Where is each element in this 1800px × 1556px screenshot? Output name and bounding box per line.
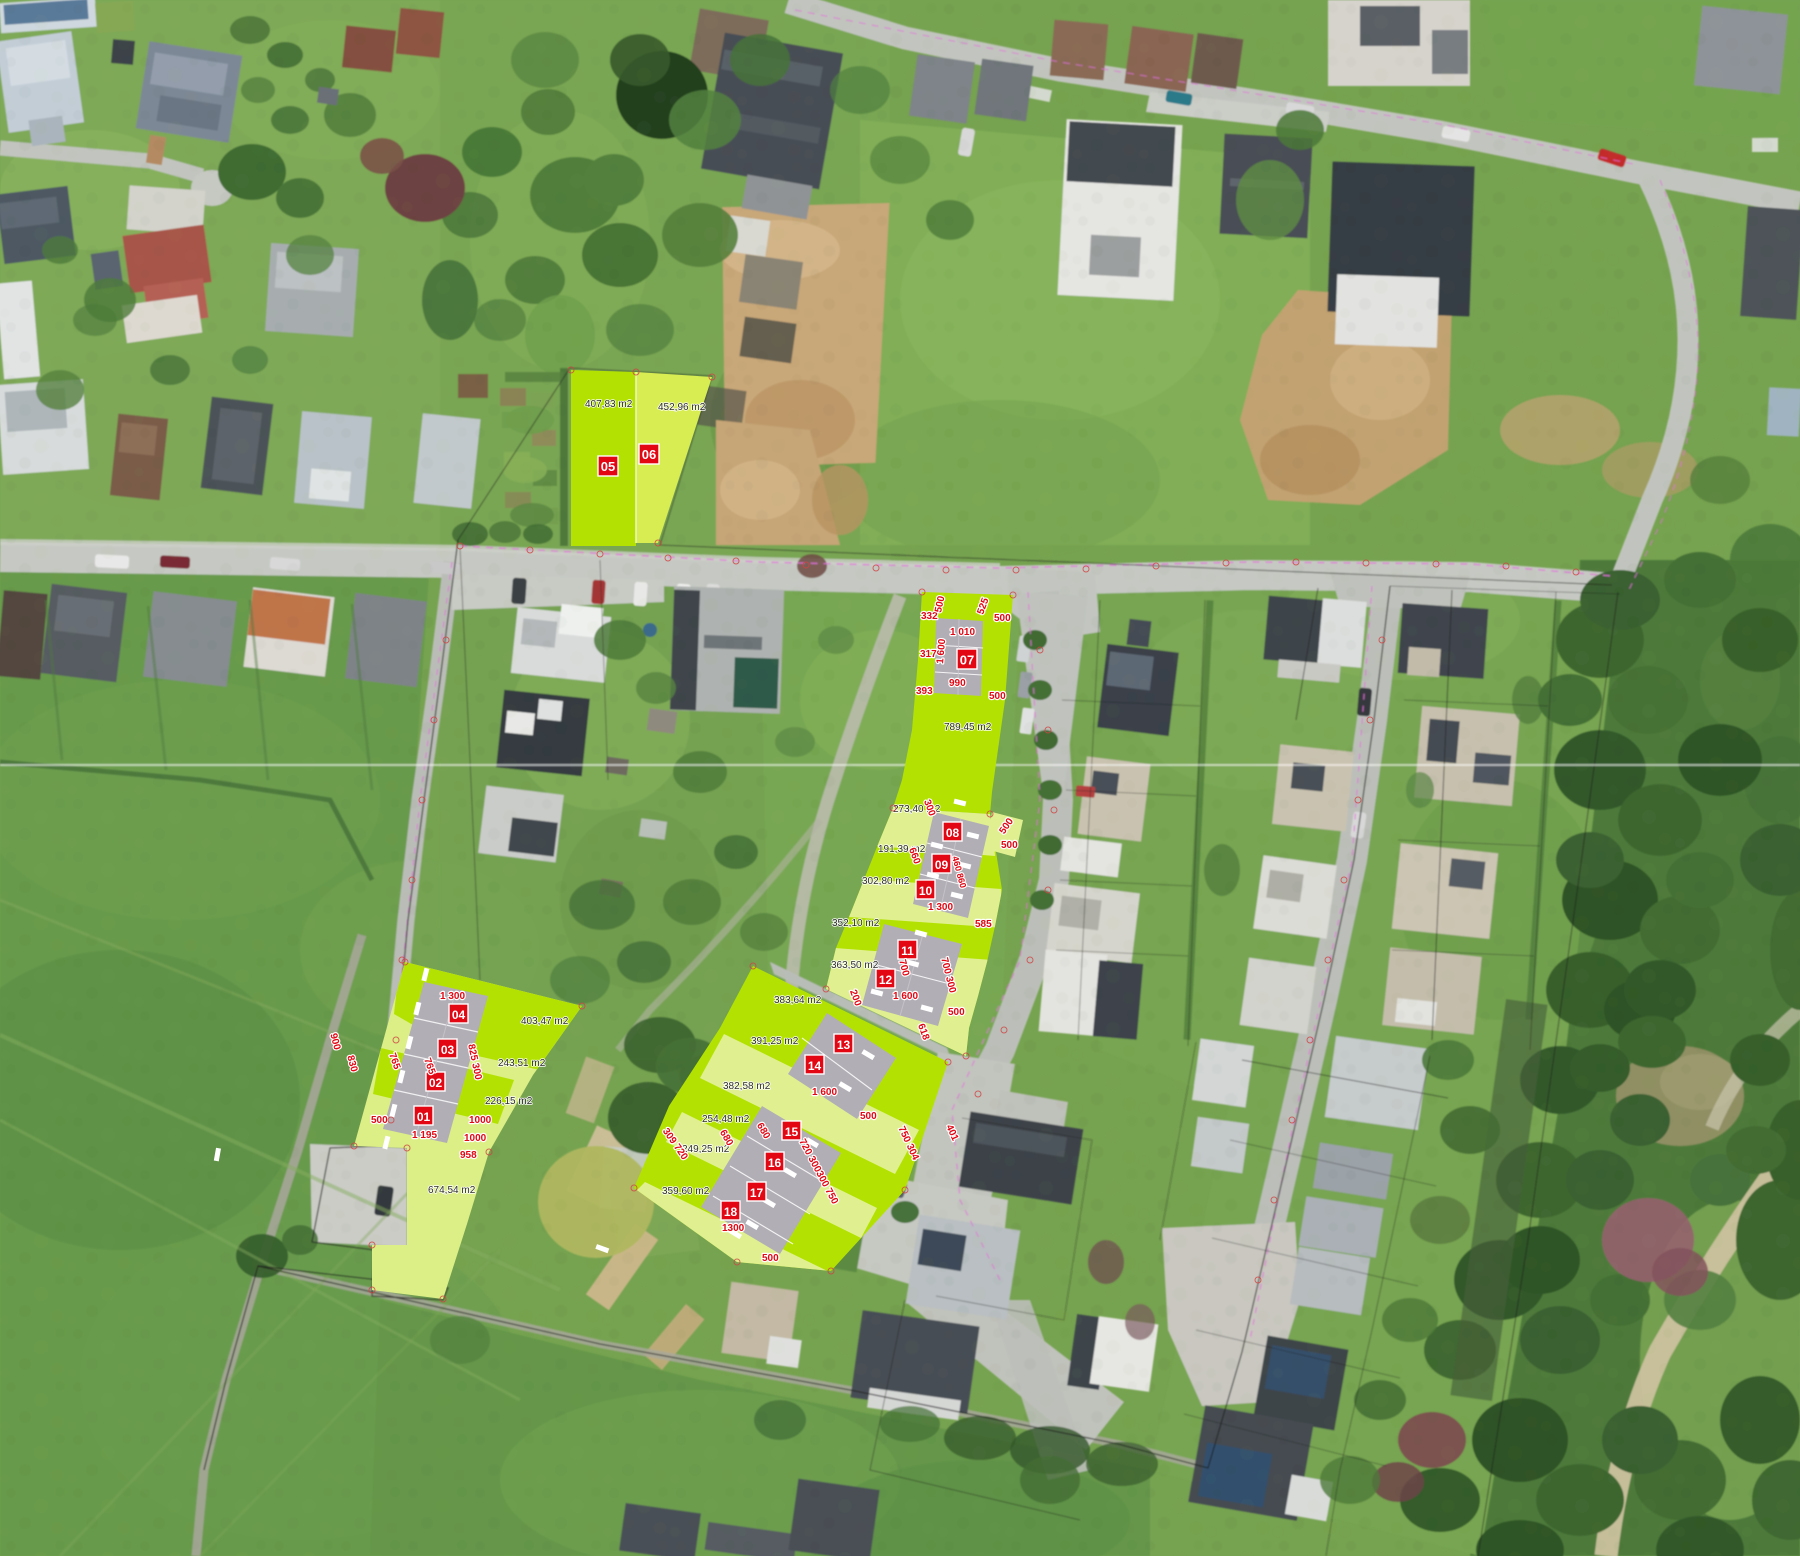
svg-text:10: 10 <box>919 884 933 898</box>
svg-text:15: 15 <box>785 1125 799 1139</box>
svg-text:363,50 m2: 363,50 m2 <box>831 960 879 971</box>
svg-text:1 300: 1 300 <box>928 902 953 913</box>
svg-text:500: 500 <box>948 1007 965 1018</box>
svg-text:1 600: 1 600 <box>935 638 948 664</box>
svg-text:990: 990 <box>949 678 966 689</box>
svg-text:1 195: 1 195 <box>412 1130 437 1141</box>
svg-text:08: 08 <box>946 826 960 840</box>
svg-text:16: 16 <box>768 1156 782 1170</box>
svg-text:1 300: 1 300 <box>440 991 465 1002</box>
svg-text:18: 18 <box>724 1205 738 1219</box>
svg-text:11: 11 <box>901 944 914 958</box>
svg-text:585: 585 <box>975 919 992 930</box>
svg-text:14: 14 <box>808 1059 822 1073</box>
svg-text:393: 393 <box>916 686 933 697</box>
svg-text:382,58 m2: 382,58 m2 <box>723 1081 771 1092</box>
svg-text:04: 04 <box>452 1008 466 1022</box>
svg-text:226,15 m2: 226,15 m2 <box>485 1096 533 1107</box>
svg-text:674,54 m2: 674,54 m2 <box>428 1185 476 1196</box>
svg-text:407,83 m2: 407,83 m2 <box>585 399 633 410</box>
svg-text:391,25 m2: 391,25 m2 <box>751 1036 799 1047</box>
svg-text:1000: 1000 <box>464 1133 487 1144</box>
svg-text:500: 500 <box>860 1111 877 1122</box>
svg-text:243,51 m2: 243,51 m2 <box>498 1058 546 1069</box>
svg-text:1 010: 1 010 <box>950 627 975 638</box>
svg-text:1 600: 1 600 <box>812 1087 837 1098</box>
svg-text:05: 05 <box>601 459 615 474</box>
svg-text:13: 13 <box>837 1038 851 1052</box>
svg-text:500: 500 <box>762 1253 779 1264</box>
svg-text:1 600: 1 600 <box>893 991 918 1002</box>
svg-text:958: 958 <box>460 1150 477 1161</box>
svg-text:12: 12 <box>879 973 893 987</box>
svg-text:352,10 m2: 352,10 m2 <box>832 918 880 929</box>
svg-text:789,45 m2: 789,45 m2 <box>944 722 992 733</box>
svg-text:1000: 1000 <box>469 1115 492 1126</box>
svg-text:07: 07 <box>960 653 974 668</box>
svg-text:452,96 m2: 452,96 m2 <box>658 402 706 413</box>
svg-text:359,60 m2: 359,60 m2 <box>662 1186 710 1197</box>
svg-text:500: 500 <box>1001 840 1018 851</box>
svg-text:254,48 m2: 254,48 m2 <box>702 1114 750 1125</box>
svg-text:1300: 1300 <box>722 1223 745 1234</box>
svg-text:500: 500 <box>994 613 1011 624</box>
svg-text:249,25 m2: 249,25 m2 <box>682 1144 730 1155</box>
svg-text:500: 500 <box>989 691 1006 702</box>
svg-text:302,80 m2: 302,80 m2 <box>862 876 910 887</box>
svg-text:383,64 m2: 383,64 m2 <box>774 995 822 1006</box>
svg-text:06: 06 <box>642 447 656 462</box>
svg-text:403,47 m2: 403,47 m2 <box>521 1016 569 1027</box>
svg-text:02: 02 <box>429 1076 443 1090</box>
svg-text:01: 01 <box>417 1110 431 1124</box>
svg-text:17: 17 <box>750 1186 764 1200</box>
svg-text:09: 09 <box>935 858 949 872</box>
svg-text:500: 500 <box>371 1115 388 1126</box>
svg-text:03: 03 <box>441 1043 455 1057</box>
